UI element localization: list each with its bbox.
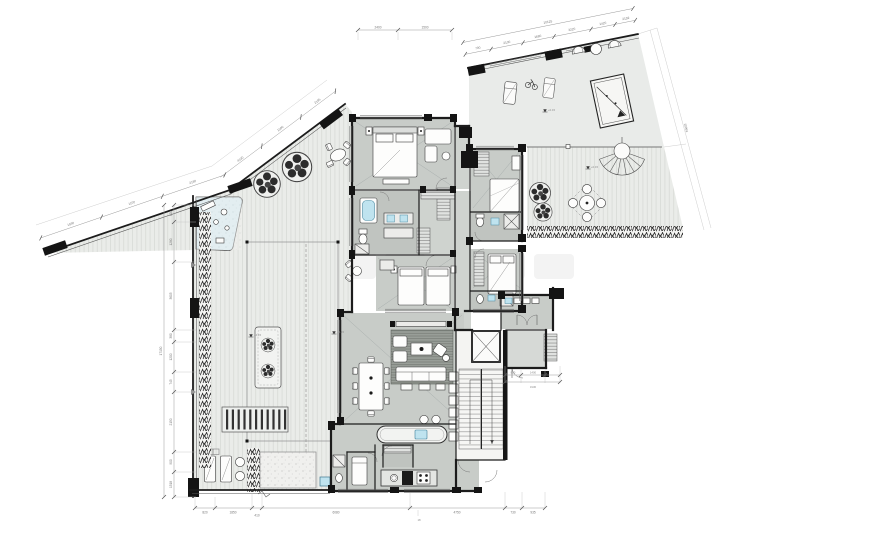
svg-text:2150: 2150: [169, 418, 173, 425]
cooktop: [417, 472, 430, 484]
oven: [402, 471, 413, 485]
svg-text:+4.15: +4.15: [254, 333, 262, 337]
svg-text:2180: 2180: [189, 179, 197, 185]
svg-text:10125: 10125: [543, 19, 553, 25]
svg-text:1500: 1500: [421, 26, 428, 30]
armchair: [393, 336, 407, 347]
svg-text:1518: 1518: [169, 481, 173, 488]
bathtub: [363, 201, 375, 221]
svg-text:820: 820: [202, 511, 208, 515]
svg-text:1420: 1420: [599, 21, 607, 26]
hedge-strip: [247, 448, 260, 492]
svg-text:18: 18: [417, 518, 421, 522]
svg-text:380: 380: [169, 333, 173, 339]
svg-text:3605: 3605: [169, 292, 173, 299]
svg-text:1580: 1580: [276, 125, 284, 133]
sun-lounger-icon: [543, 78, 556, 99]
svg-text:+0.15: +0.15: [591, 165, 599, 169]
svg-text:900: 900: [169, 459, 173, 465]
tree-icon: [534, 203, 552, 221]
svg-text:+4.15: +4.15: [337, 330, 345, 334]
svg-text:+0.15: +0.15: [548, 108, 556, 112]
tv-console: [396, 322, 446, 327]
svg-text:3220: 3220: [568, 27, 576, 32]
bed-bench: [383, 179, 409, 184]
sun-lounger-icon: [503, 81, 517, 104]
svg-text:410: 410: [254, 514, 260, 518]
closet: [421, 191, 455, 199]
svg-text:2159: 2159: [622, 16, 630, 21]
svg-text:3130: 3130: [530, 385, 537, 389]
svg-text:2400: 2400: [374, 26, 381, 30]
svg-text:17150: 17150: [159, 346, 163, 355]
tree-icon: [254, 171, 281, 198]
floor-plan-sheet: 620 1280 3605 380 1200 745 2150 900 1518…: [0, 0, 877, 540]
tree-icon: [282, 152, 311, 181]
svg-text:620: 620: [169, 211, 173, 217]
svg-text:1100: 1100: [128, 200, 136, 206]
armchair: [393, 351, 407, 362]
svg-text:1590: 1590: [67, 221, 75, 227]
svg-text:700: 700: [475, 46, 481, 51]
bar-stool: [420, 415, 428, 423]
structural-core: [461, 151, 478, 168]
svg-text:1680: 1680: [534, 34, 542, 39]
svg-text:2185: 2185: [313, 97, 321, 105]
west-terrace: [46, 104, 362, 492]
svg-text:1400: 1400: [530, 371, 537, 375]
sand-spa-pad: [260, 452, 316, 488]
bar-stool: [432, 415, 440, 423]
duct-shaft: [459, 127, 472, 138]
tree-icon: [530, 183, 551, 204]
plant-icon: [261, 364, 275, 378]
sofa: [425, 129, 451, 144]
svg-text:935: 935: [530, 511, 536, 515]
stair-core: [449, 369, 503, 449]
dim-bottom: 820 1850 410 6080 4750 730 935 18: [193, 492, 547, 522]
sofa: [396, 367, 446, 381]
svg-text:4330: 4330: [236, 155, 244, 163]
plant-icon: [261, 338, 275, 352]
elevator: [472, 331, 500, 362]
svg-text:2100: 2100: [503, 40, 511, 45]
svg-text:1280: 1280: [169, 238, 173, 245]
floor-plan-drawing: 620 1280 3605 380 1200 745 2150 900 1518…: [0, 0, 877, 540]
svg-text:800: 800: [511, 371, 516, 375]
dim-house-top: 2400 1500: [356, 26, 454, 41]
dining-table: [359, 363, 383, 410]
toilet: [359, 229, 367, 244]
island-sink: [415, 430, 427, 439]
svg-text:1850: 1850: [229, 511, 236, 515]
svg-text:1200: 1200: [169, 353, 173, 360]
svg-text:730: 730: [510, 511, 516, 515]
sink: [491, 218, 499, 225]
svg-text:745: 745: [169, 379, 173, 385]
dresser: [380, 260, 394, 270]
hedge-west: [199, 212, 211, 468]
svg-text:6080: 6080: [332, 511, 339, 515]
side-table-icon: [591, 44, 602, 55]
pergola-bench: [222, 407, 288, 432]
svg-text:4750: 4750: [453, 511, 460, 515]
living-room: [390, 321, 453, 390]
hedge-south: [527, 226, 683, 238]
